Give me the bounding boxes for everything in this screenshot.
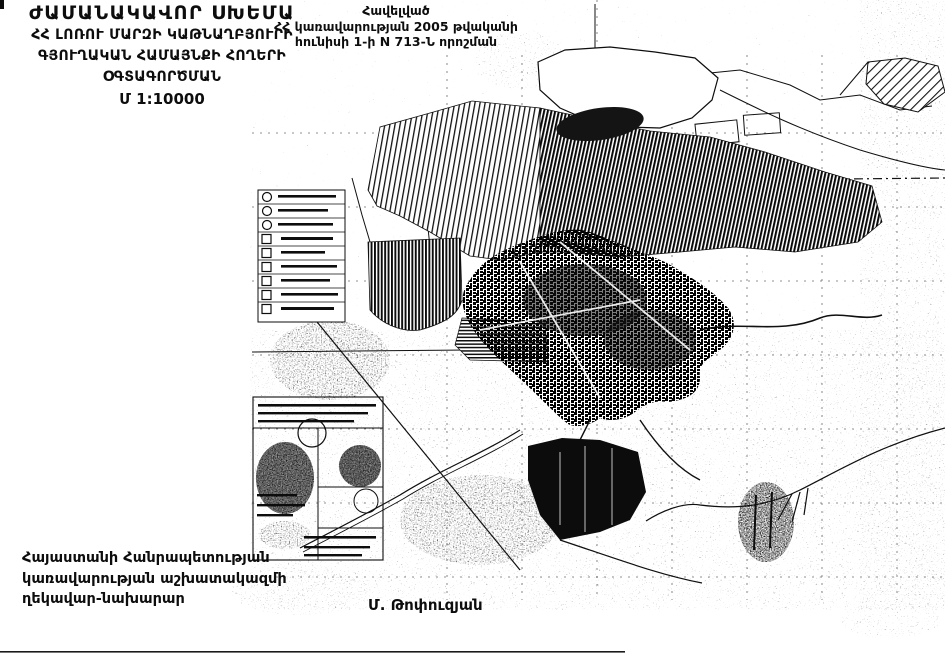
vertical-hatch-parcel bbox=[368, 238, 462, 330]
legend-box bbox=[258, 190, 345, 322]
appendix-line1: Հավելված bbox=[258, 3, 534, 19]
signature-line1: Հայաստանի Հանրապետության bbox=[22, 548, 287, 569]
appendix-line3: հունիսի 1-ի N 713-Ն որոշման bbox=[258, 34, 534, 50]
signature-line3: ղեկավար-նախարար bbox=[22, 589, 287, 610]
signature-line2: կառավարության աշխատակազմի bbox=[22, 569, 287, 590]
map-scale-label: Մ 1:10000 bbox=[0, 89, 324, 109]
map-subtitle-line3: ՕԳՏԱԳՈՐԾՄԱՆ bbox=[0, 67, 324, 88]
scan-bottom-edge-line bbox=[0, 651, 625, 653]
scanned-map-sheet: ԺԱՄԱՆԱԿԱՎՈՐ ՍԽԵՄԱ ՀՀ ԼՈՌՈՒ ՄԱՐԶԻ ԿԱԹՆԱՂԲ… bbox=[0, 0, 945, 654]
seal-smudge bbox=[259, 521, 311, 549]
signature-block: Հայաստանի Հանրապետության կառավարության ա… bbox=[22, 548, 287, 610]
appendix-block: Հավելված ՀՀ կառավարության 2005 թվականի հ… bbox=[258, 3, 534, 50]
speckled-parcel bbox=[738, 482, 794, 562]
appendix-line2: ՀՀ կառավարության 2005 թվականի bbox=[258, 19, 534, 35]
signer-name: Մ. Թոփուզյան bbox=[368, 596, 483, 614]
